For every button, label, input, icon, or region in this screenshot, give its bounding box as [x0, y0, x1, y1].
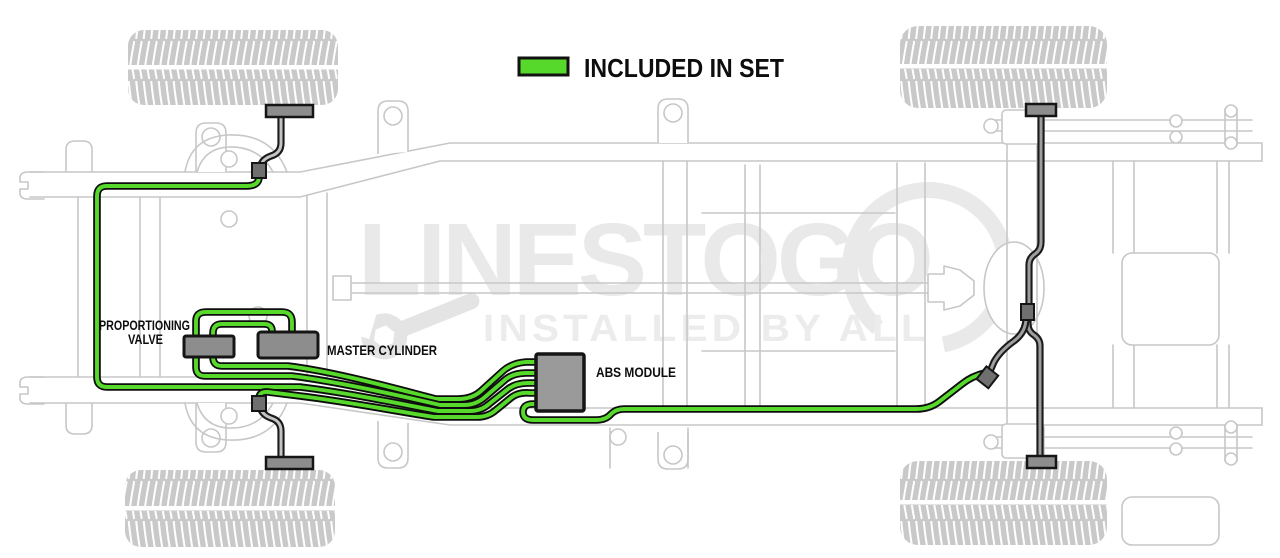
abs-module-box [536, 354, 584, 411]
master-cylinder-box [258, 332, 318, 358]
watermark-tagline-text: INSTALLED BY ALL [483, 308, 930, 350]
abs-module-label: ABS MODULE [596, 364, 676, 380]
tire-front-top [128, 30, 338, 105]
legend-label: INCLUDED IN SET [584, 53, 784, 83]
hose-connector-front-bottom [252, 396, 266, 411]
hose-connector-front-top [252, 163, 266, 178]
watermark: LINESTOGO INSTALLED BY ALL [344, 158, 1038, 378]
legend-swatch [519, 58, 568, 75]
master-cylinder-label: MASTER CYLINDER [327, 342, 437, 358]
caliper-bracket-front-bottom [266, 457, 313, 469]
rear-line-connector [977, 366, 999, 388]
leaf-spring-bottom [984, 421, 1252, 465]
proportioning-valve-label-line2: VALVE [128, 332, 163, 347]
tire-rear-bottom [900, 461, 1107, 545]
caliper-bracket-rear-bottom [1027, 456, 1056, 468]
brake-line-diagram: LINESTOGO INSTALLED BY ALL [0, 0, 1280, 558]
rear-carrier [1113, 161, 1229, 545]
caliper-bracket-rear-top [1026, 104, 1056, 116]
rear-axle-junction-connector [1021, 304, 1034, 320]
diagram-canvas: LINESTOGO INSTALLED BY ALL [0, 0, 1280, 558]
brake-line-rear [523, 373, 985, 420]
legend: INCLUDED IN SET [519, 53, 784, 83]
caliper-bracket-front-top [266, 105, 313, 117]
tire-front-bottom [125, 470, 335, 547]
tire-rear-top [900, 26, 1107, 108]
proportioning-valve-label-line1: PROPORTIONING [99, 318, 190, 333]
proportioning-valve-box [184, 336, 234, 357]
